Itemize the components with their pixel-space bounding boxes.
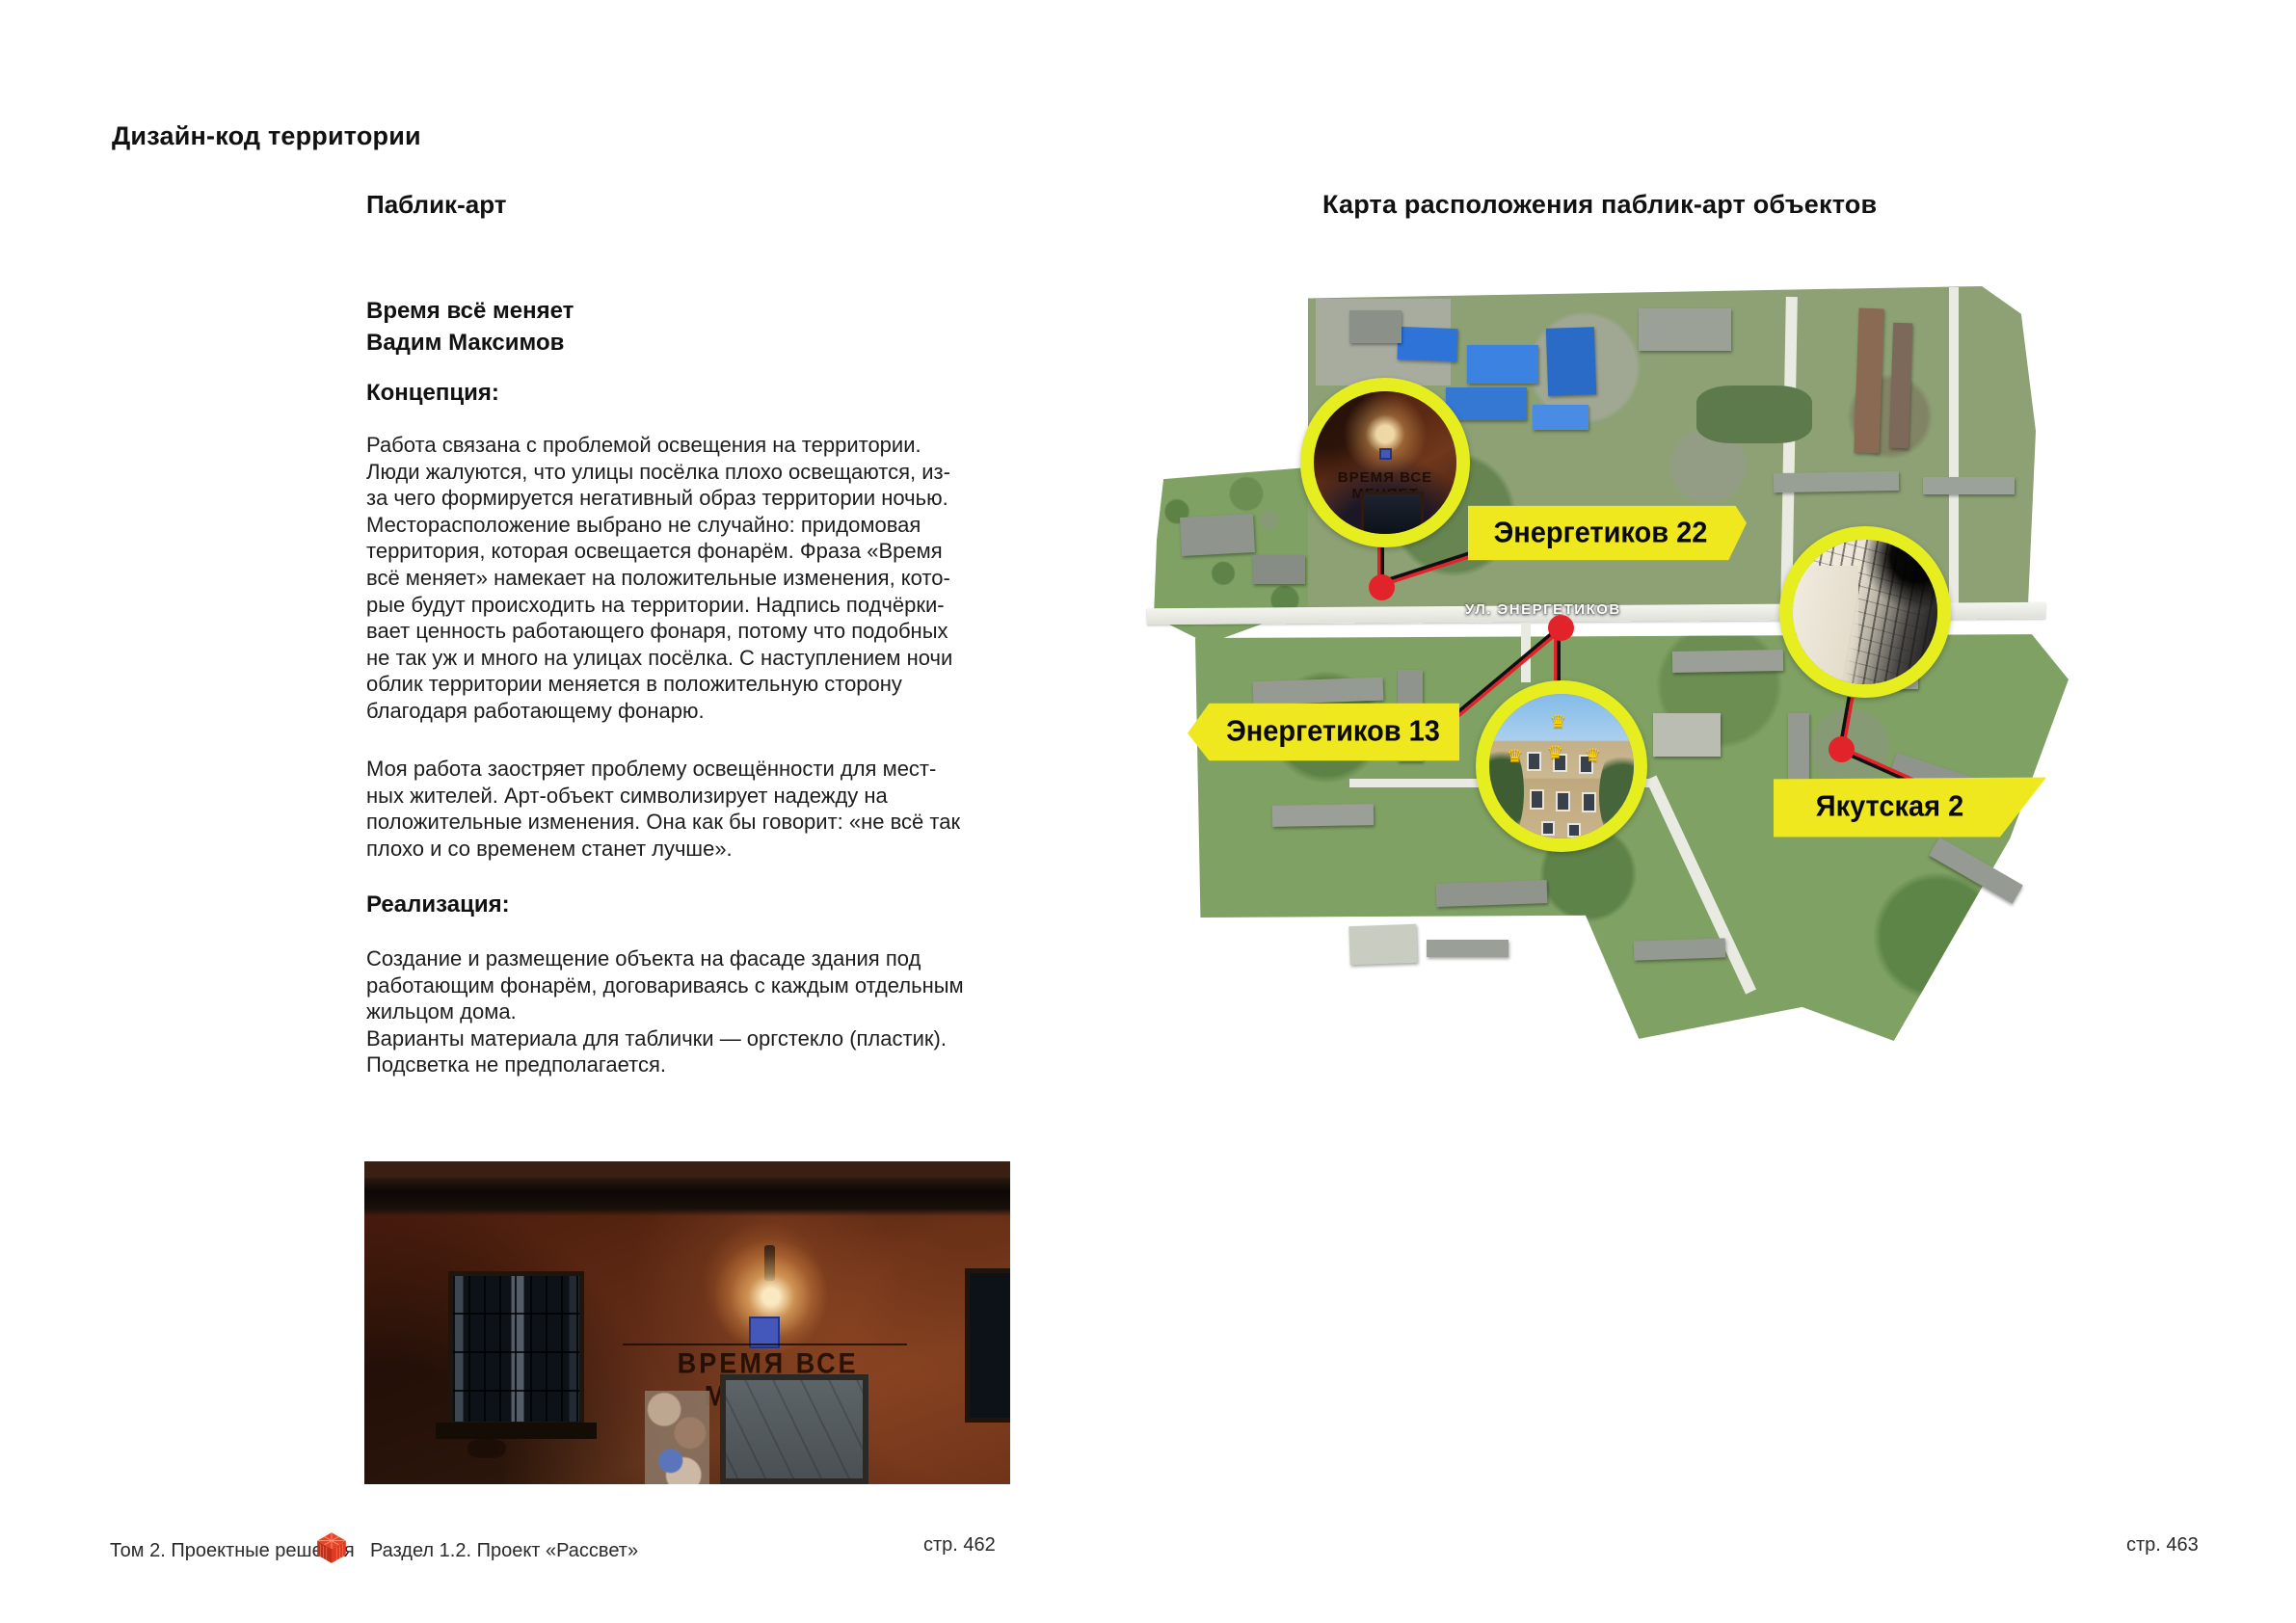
industrial-blue-roof (1446, 387, 1527, 420)
facade-window (1567, 823, 1581, 838)
tree-cluster (1696, 386, 1812, 443)
footer-page-left: стр. 462 (923, 1534, 996, 1556)
entrance-door (720, 1374, 868, 1484)
rassvet-logo-icon (314, 1530, 349, 1565)
map-building (1272, 804, 1374, 827)
facade-window (1527, 752, 1541, 771)
map-label-yakutskaya-2: Якутская 2 (1774, 778, 2046, 838)
facade-night-photo: ВРЕМЯ ВСЕ МЕНЯЕТ (364, 1161, 1010, 1484)
map-building (1427, 940, 1508, 957)
window-grille (453, 1276, 579, 1422)
inset-circle-vremya: ВРЕМЯ ВСЕ МЕНЯЕТ (1300, 378, 1470, 547)
map-building (1854, 308, 1883, 454)
map-building (1348, 924, 1417, 965)
inset-plaque (1379, 448, 1392, 460)
map-point-energetikov-22 (1369, 574, 1395, 600)
map-building (1180, 514, 1255, 556)
section-title-map: Карта расположения паблик-арт объектов (1322, 190, 1877, 220)
inset-lattice-photo (1793, 540, 1937, 684)
poster-board (645, 1391, 709, 1484)
realization-paragraph: Создание и размещение объекта на фасаде … (366, 945, 1041, 1078)
map-building (1349, 310, 1402, 343)
facade-window (1530, 789, 1544, 810)
section-title-public-art: Паблик-арт (366, 190, 506, 220)
map-building (1253, 555, 1305, 584)
facade-window (1556, 791, 1570, 811)
road-vertical-2 (1949, 287, 1959, 609)
artwork-artist: Вадим Максимов (366, 327, 564, 359)
window-sill (436, 1423, 598, 1439)
map-label-energetikov-13: Энергетиков 13 (1188, 704, 1459, 761)
inset-circle-yakutskaya (1779, 526, 1951, 698)
industrial-blue-roof (1397, 327, 1457, 361)
map-building (1774, 471, 1899, 492)
facade-window-left (448, 1271, 584, 1426)
map-building (1672, 650, 1783, 673)
inset-circle-energetikov13: ♛ ♛ ♛ ♛ (1476, 680, 1647, 852)
inset-facade-photo: ♛ ♛ ♛ ♛ (1489, 694, 1634, 838)
white-wall (1793, 566, 1858, 684)
public-art-map: УЛ. ЭНЕРГЕТИКОВ ВРЕМЯ ВСЕ МЕНЯЕТ (1108, 270, 2084, 1052)
map-point-yakutskaya-2 (1829, 736, 1855, 762)
concept-paragraph-1: Работа связана с проблемой освещения на … (366, 432, 1041, 725)
map-building (1634, 938, 1726, 960)
map-label-energetikov-22: Энергетиков 22 (1468, 506, 1747, 561)
door-graffiti (726, 1380, 863, 1478)
concept-paragraph-2: Моя работа заостряет проблему освещённос… (366, 756, 1041, 862)
street-label: УЛ. ЭНЕРГЕТИКОВ (1465, 601, 1621, 618)
graffiti-smudge (467, 1439, 506, 1458)
facade-cornice-shadow (364, 1178, 1010, 1216)
inset-doorway (1361, 492, 1424, 540)
map-point-energetikov-13 (1548, 615, 1574, 641)
footer-section: Раздел 1.2. Проект «Рассвет» (370, 1540, 638, 1562)
map-building (1639, 308, 1731, 351)
facade-window (1582, 792, 1596, 812)
map-building (1923, 477, 2015, 494)
industrial-blue-roof (1546, 327, 1596, 396)
inset-vremya-photo: ВРЕМЯ ВСЕ МЕНЯЕТ (1314, 391, 1456, 534)
artwork-title: Время всё меняет (366, 295, 574, 328)
map-building (1253, 678, 1384, 705)
realization-heading: Реализация: (366, 889, 510, 921)
concept-heading: Концепция: (366, 377, 499, 410)
map-building (1653, 713, 1721, 757)
facade-window-right (965, 1268, 1010, 1423)
crown-icon: ♛ (1585, 745, 1601, 767)
map-building (1436, 880, 1548, 907)
footer-page-right: стр. 463 (2126, 1534, 2199, 1556)
facade-window (1541, 821, 1555, 836)
page-title: Дизайн-код территории (112, 121, 421, 151)
crown-icon: ♛ (1550, 711, 1566, 733)
industrial-blue-roof (1467, 345, 1538, 384)
crown-icon: ♛ (1507, 746, 1523, 768)
industrial-blue-roof (1533, 405, 1589, 430)
crown-icon: ♛ (1547, 742, 1563, 764)
wall-crack-line (623, 1344, 907, 1345)
document-spread: Дизайн-код территории Паблик-арт Время в… (0, 0, 2296, 1623)
